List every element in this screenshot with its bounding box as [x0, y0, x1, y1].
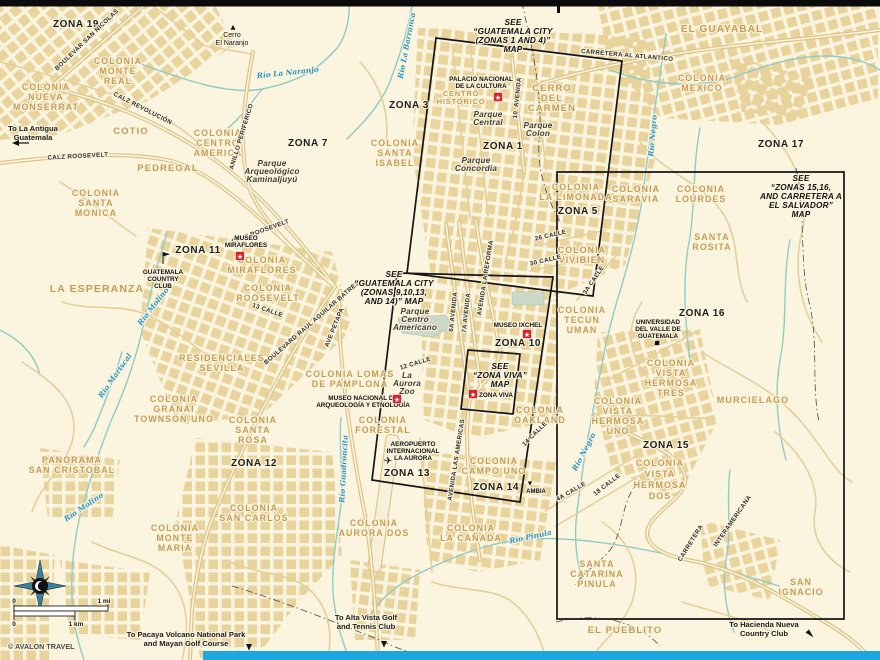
tspan-shape: ZONA 7: [288, 138, 328, 149]
label-colonia-oakland: COLONIAOAKLAND: [514, 405, 566, 425]
tspan-shape: LA CAÑADA: [440, 533, 502, 543]
tspan-shape: TRES: [657, 388, 685, 398]
tspan-shape: MONICA: [75, 208, 117, 218]
tspan-shape: Cerro: [223, 32, 241, 39]
tspan-shape: COLONIA: [647, 358, 695, 368]
tspan-shape: MONSERRAT: [13, 102, 79, 112]
tspan-shape: VISTA: [603, 406, 634, 416]
tspan-shape: SEE: [492, 362, 509, 371]
label-museo-ixchel: MUSEO IXCHEL: [494, 322, 543, 329]
tspan-shape: ISABEL: [376, 158, 415, 168]
label-colonia-campo-uno: COLONIACAMPO UNO: [462, 456, 527, 476]
tspan-shape: COLONIA: [371, 138, 419, 148]
tspan-shape: Country Club: [740, 629, 788, 638]
tspan-shape: RESIDENCIALES: [179, 353, 265, 363]
sight-icon: ★: [236, 252, 245, 261]
tspan-shape: MURCIELAGO: [717, 395, 790, 405]
label-colonia-forestal: COLONIAFORESTAL: [355, 415, 411, 435]
tspan-shape: LOURDES: [676, 194, 727, 204]
tspan-shape: COLONIA: [359, 415, 407, 425]
label-santa-rosita: SANTAROSITA: [692, 232, 731, 252]
tspan-shape: ZONA 19: [53, 19, 99, 30]
sight-icon: ★: [523, 330, 532, 339]
text-shape: ★: [524, 331, 530, 339]
tspan-shape: and Mayan Golf Course: [144, 639, 229, 648]
rect-shape: [655, 341, 659, 345]
tspan-shape: COLONIA: [558, 305, 606, 315]
tspan-shape: NUEVA: [28, 92, 64, 102]
tspan-shape: PANORAMA: [42, 455, 102, 465]
top-crop-bar: [0, 0, 880, 7]
tspan-shape: AURORA DOS: [339, 528, 410, 538]
tspan-shape: ZONA 13: [384, 468, 430, 479]
label-zona-12: ZONA 12: [231, 458, 277, 469]
label-1-mi: 1 mi: [97, 598, 110, 605]
tspan-shape: ZONA 15: [643, 440, 689, 451]
tspan-shape: SANTA: [579, 559, 614, 569]
label-el-guayabal: EL GUAYABAL: [681, 24, 763, 35]
label-colonia-roosevelt: COLONIAROOSEVELT: [236, 283, 300, 303]
label-colonia-saravia: COLONIASARAVIA: [612, 184, 660, 204]
tspan-shape: SEVILLA: [200, 363, 245, 373]
text-shape: ▲: [231, 23, 236, 31]
tspan-shape: MAP: [792, 210, 811, 219]
sight-icon: ★: [469, 390, 478, 399]
tspan-shape: 1 km: [69, 621, 84, 628]
tspan-shape: ZONA 10: [495, 338, 541, 349]
tspan-shape: UMAN: [567, 325, 598, 335]
label-colonia-santa-isabel: COLONIASANTAISABEL: [371, 138, 419, 168]
label-cotio: COTIO: [113, 126, 149, 137]
tspan-shape: MUSEO NACIONAL DE: [328, 395, 398, 402]
tspan-shape: DOS: [649, 491, 671, 501]
text-shape: ★: [237, 253, 243, 261]
tspan-shape: CLUB: [154, 283, 172, 290]
tspan-shape: 0: [12, 598, 16, 605]
label-zona-15: ZONA 15: [643, 440, 689, 451]
tspan-shape: (ZONAS 1 AND 4)”: [476, 36, 551, 45]
tspan-shape: SEE: [505, 18, 522, 27]
tspan-shape: To La Antigua: [8, 124, 59, 133]
tspan-shape: EL PUEBLITO: [588, 625, 663, 636]
label-parque-central: ParqueCentral: [473, 110, 503, 127]
tspan-shape: ROSA: [238, 435, 268, 445]
tspan-shape: COLONIA: [470, 456, 518, 466]
square-icon: [655, 341, 659, 345]
tspan-shape: COLONIA: [150, 394, 198, 404]
tspan-shape: SEE: [793, 174, 810, 183]
label-1-km: 1 km: [69, 621, 84, 628]
label-murcielago: MURCIELAGO: [717, 395, 790, 405]
label-el-pueblito: EL PUEBLITO: [588, 625, 663, 636]
label-colonia-vivibien: COLONIAVIVIBIEN: [558, 245, 606, 265]
label-zona-3: ZONA 3: [389, 100, 429, 111]
label-zona-10: ZONA 10: [495, 338, 541, 349]
label-la-esperanza: LA ESPERANZA: [50, 283, 144, 295]
peak-icon: ▲: [231, 23, 236, 31]
tspan-shape: COLONIA: [678, 73, 726, 83]
tspan-shape: MUSEO IXCHEL: [494, 322, 543, 329]
tspan-shape: SANTA: [78, 198, 113, 208]
footer-accent-bar: [203, 651, 880, 660]
text-shape: ★: [394, 396, 400, 404]
tspan-shape: and Tennis Club: [337, 622, 396, 631]
tspan-shape: SAN CRISTOBAL: [29, 465, 115, 475]
tspan-shape: HERMOSA: [645, 378, 698, 388]
tspan-shape: COLONIA: [552, 182, 600, 192]
tspan-shape: SAN: [790, 577, 812, 587]
label-to-pacaya-volcano-national-park-and-mayan-golf-course: To Pacaya Volcano National Parkand Mayan…: [127, 630, 247, 648]
label-zona-19: ZONA 19: [53, 19, 99, 30]
tspan-shape: REAL: [104, 76, 132, 86]
tspan-shape: “GUATEMALA CITY: [473, 27, 554, 36]
tspan-shape: To Pacaya Volcano National Park: [127, 630, 247, 639]
tspan-shape: EL GUAYABAL: [681, 24, 763, 35]
tspan-shape: ZONA 11: [175, 245, 221, 256]
tspan-shape: PEDREGAL: [137, 163, 199, 174]
tspan-shape: COLONIA: [22, 82, 70, 92]
tspan-shape: VIVIBIEN: [559, 255, 605, 265]
city-map: ZONA 19ZONA 3ZONA 1ZONA 7ZONA 17ZONA 5ZO…: [0, 0, 880, 660]
tspan-shape: AEROPUERTO: [391, 441, 436, 448]
label-avalon-travel: © AVALON TRAVEL: [8, 642, 75, 651]
tspan-shape: ZONA 12: [231, 458, 277, 469]
tspan-shape: COTIO: [113, 126, 149, 137]
tspan-shape: ZONA 14: [473, 482, 519, 493]
tspan-shape: ROSITA: [692, 242, 731, 252]
tspan-shape: COLONIA: [350, 518, 398, 528]
tspan-shape: MIRAFLORES: [227, 265, 296, 275]
tspan-shape: COLONIA: [516, 405, 564, 415]
tspan-shape: MEXICO: [681, 83, 722, 93]
label-zona-7: ZONA 7: [288, 138, 328, 149]
label-to-alta-vista-golf-and-tennis-club: To Alta Vista Golfand Tennis Club: [335, 613, 398, 631]
tspan-shape: MAP: [491, 380, 510, 389]
tspan-shape: PINULA: [577, 579, 616, 589]
tspan-shape: Concordia: [455, 164, 498, 173]
tspan-shape: COLONIA: [238, 255, 286, 265]
tspan-shape: Colon: [526, 129, 550, 138]
tspan-shape: El Naranjo: [216, 40, 249, 47]
tspan-shape: Americano: [392, 323, 437, 332]
tspan-shape: COUNTRY: [147, 276, 179, 283]
tspan-shape: COLONIA: [594, 396, 642, 406]
tspan-shape: COLONIA: [244, 283, 292, 293]
tspan-shape: INTERNACIONAL: [387, 448, 440, 455]
rect-shape: [14, 611, 75, 616]
tspan-shape: GRANAI: [153, 404, 194, 414]
rect-shape: [512, 292, 544, 305]
tspan-shape: AMBIA: [526, 489, 546, 495]
tspan-shape: COLONIA: [72, 188, 120, 198]
label-centro-historico: CENTROHISTORICO: [437, 89, 486, 106]
label-zona-viva: ZONA VIVA: [479, 392, 513, 399]
tspan-shape: TOWNSON UNO: [134, 414, 214, 424]
tspan-shape: “GUATEMALA CITY: [354, 279, 435, 288]
tspan-shape: SEE: [386, 270, 403, 279]
label-universidad-del-valle-de-guatemala: UNIVERSIDADDEL VALLE DEGUATEMALA: [635, 319, 681, 340]
tspan-shape: Kaminaljuyú: [247, 175, 298, 184]
label-0: 0: [12, 598, 16, 605]
tspan-shape: UNO: [607, 426, 630, 436]
label-zona-5: ZONA 5: [558, 206, 598, 217]
tspan-shape: 1 mi: [97, 598, 110, 605]
tspan-shape: 0: [12, 621, 16, 628]
tspan-shape: FORESTAL: [355, 425, 411, 435]
tspan-shape: MARIA: [158, 543, 192, 553]
tspan-shape: HISTORICO: [437, 97, 486, 106]
tspan-shape: “ZONA VIVA”: [473, 371, 528, 380]
tspan-shape: COLONIA: [447, 523, 495, 533]
label-zona-1: ZONA 1: [483, 141, 523, 152]
label-colonia-santa-monica: COLONIASANTAMONICA: [72, 188, 120, 218]
tspan-shape: GUATEMALA: [638, 333, 679, 340]
tspan-shape: COLONIA: [636, 458, 684, 468]
tspan-shape: DEL VALLE DE: [635, 326, 681, 333]
tspan-shape: ZONA 17: [758, 139, 804, 150]
label-palacio-nacional-de-la-cultura: PALACIO NACIONALDE LA CULTURA: [449, 76, 513, 90]
label-0: 0: [12, 621, 16, 628]
tspan-shape: GUATEMALA: [143, 269, 184, 276]
tspan-shape: COLONIA: [230, 503, 278, 513]
label-aeropuerto-internacional-la-aurora: AEROPUERTOINTERNACIONALLA AURORA: [387, 441, 440, 462]
tspan-shape: COLONIA: [612, 184, 660, 194]
tspan-shape: MONTE: [99, 66, 136, 76]
label-colonia-la-ca-ada: COLONIALA CAÑADA: [440, 523, 502, 543]
sight-icon: ★: [393, 395, 402, 404]
tspan-shape: MIRAFLORES: [225, 242, 268, 249]
tspan-shape: LA LIMONADA: [539, 192, 612, 202]
tspan-shape: PALACIO NACIONAL: [449, 76, 513, 83]
label-zona-13: ZONA 13: [384, 468, 430, 479]
tspan-shape: LA AURORA: [394, 455, 432, 462]
tspan-shape: “ZONAS 15,16,: [771, 183, 831, 192]
label-colonia-lomas-de-pamplona: COLONIA LOMASDE PAMPLONA: [306, 369, 395, 389]
tspan-shape: To Alta Vista Golf: [335, 613, 398, 622]
tspan-shape: SANTA: [377, 148, 412, 158]
label-ambia: AMBIA: [526, 489, 546, 495]
tspan-shape: SANTA: [235, 425, 270, 435]
circle-shape: [38, 581, 47, 590]
rect-shape: [14, 606, 108, 611]
tspan-shape: HERMOSA: [634, 480, 687, 490]
tspan-shape: CATARINA: [570, 569, 623, 579]
tspan-shape: VISTA: [656, 368, 687, 378]
tspan-shape: MAP: [504, 45, 523, 54]
tspan-shape: EL SALVADOR”: [769, 201, 834, 210]
tspan-shape: COLONIA: [558, 245, 606, 255]
tspan-shape: ZONA 5: [558, 206, 598, 217]
tspan-shape: ZONA VIVA: [479, 392, 513, 399]
text-shape: ★: [470, 391, 476, 399]
tspan-shape: (ZONAS 9,10,13,: [361, 288, 427, 297]
tspan-shape: COLONIA: [194, 128, 242, 138]
top-crop-letter-stub: [557, 6, 560, 13]
tspan-shape: Central: [473, 118, 503, 127]
tspan-shape: COLONIA LOMAS: [306, 369, 395, 379]
label-zona-16: ZONA 16: [679, 308, 725, 319]
tspan-shape: DE PAMPLONA: [312, 379, 388, 389]
label-zona-17: ZONA 17: [758, 139, 804, 150]
tspan-shape: IGNACIO: [778, 587, 823, 597]
tspan-shape: SARAVIA: [613, 194, 660, 204]
tspan-shape: COLONIA: [151, 523, 199, 533]
label-parque-colon: ParqueColon: [524, 121, 553, 138]
tspan-shape: SAN CARLOS: [219, 513, 288, 523]
tspan-shape: MONTE: [156, 533, 193, 543]
tspan-shape: LA ESPERANZA: [50, 283, 144, 295]
tspan-shape: COLONIA: [229, 415, 277, 425]
tspan-shape: TECUN: [564, 315, 600, 325]
sight-icon: ★: [494, 93, 503, 102]
label-zona-14: ZONA 14: [473, 482, 519, 493]
label-zona-11: ZONA 11: [175, 245, 221, 256]
tspan-shape: CAMPO UNO: [462, 466, 527, 476]
tspan-shape: © AVALON TRAVEL: [8, 642, 75, 651]
text-shape: ✈: [384, 456, 392, 467]
tspan-shape: Guatemala: [14, 133, 54, 142]
tspan-shape: HERMOSA: [592, 416, 645, 426]
label-to-la-antigua-guatemala: To La AntiguaGuatemala: [8, 124, 59, 142]
tspan-shape: CARMEN: [528, 103, 576, 114]
label-colonia-lourdes: COLONIALOURDES: [676, 184, 727, 204]
tspan-shape: VISTA: [645, 469, 676, 479]
guatemala-city-map-page: ZONA 19ZONA 3ZONA 1ZONA 7ZONA 17ZONA 5ZO…: [0, 0, 880, 660]
tspan-shape: AND CARRETERA A: [759, 192, 842, 201]
tspan-shape: MUSEO: [234, 235, 257, 242]
tspan-shape: CENTRO: [196, 138, 240, 148]
tspan-shape: UNIVERSIDAD: [636, 319, 680, 326]
tspan-shape: ZONA 16: [679, 308, 725, 319]
label-colonia-mexico: COLONIAMEXICO: [678, 73, 726, 93]
text-shape: ★: [495, 94, 501, 102]
tspan-shape: ZONA 3: [389, 100, 429, 111]
tspan-shape: ZONA 1: [483, 141, 523, 152]
tspan-shape: COLONIA: [677, 184, 725, 194]
tspan-shape: COLONIA: [94, 56, 142, 66]
tspan-shape: AND 14)” MAP: [364, 297, 424, 306]
label-pedregal: PEDREGAL: [137, 163, 199, 174]
plane-icon: ✈: [384, 456, 392, 467]
tspan-shape: To Hacienda Nueva: [729, 620, 799, 629]
tspan-shape: SANTA: [694, 232, 729, 242]
tspan-shape: ROOSEVELT: [236, 293, 300, 303]
label-colonia-monte-maria: COLONIAMONTEMARIA: [151, 523, 199, 553]
